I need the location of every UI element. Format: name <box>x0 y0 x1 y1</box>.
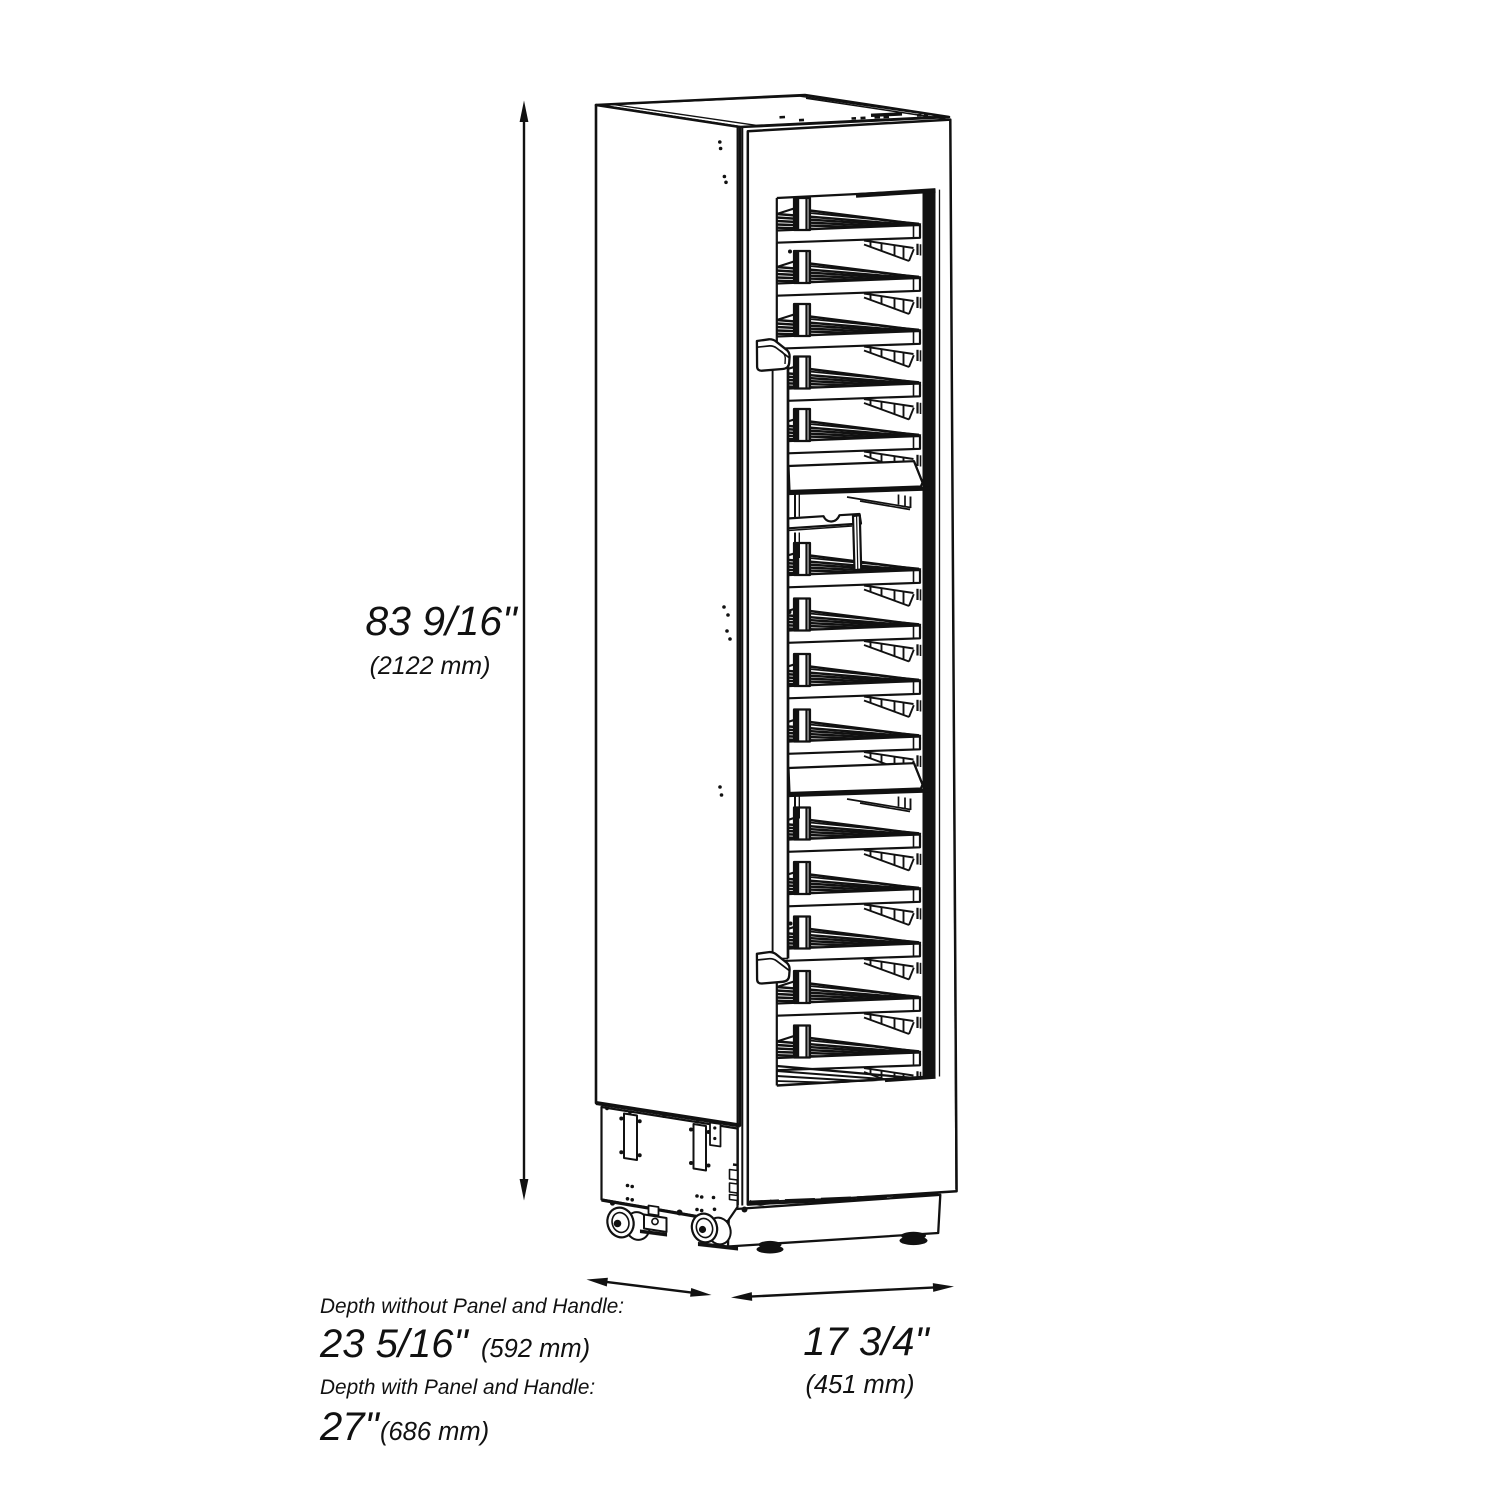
svg-text:83 9/16": 83 9/16" <box>365 598 519 644</box>
svg-text:Depth without Panel and Handle: Depth without Panel and Handle: <box>320 1295 624 1318</box>
svg-text:27": 27" <box>319 1405 380 1449</box>
svg-text:23 5/16": 23 5/16" <box>319 1322 469 1366</box>
svg-text:(592 mm): (592 mm) <box>481 1335 590 1363</box>
svg-text:(686 mm): (686 mm) <box>380 1418 489 1446</box>
svg-text:(451 mm): (451 mm) <box>805 1371 914 1399</box>
svg-text:17 3/4": 17 3/4" <box>803 1320 930 1364</box>
svg-text:(2122 mm): (2122 mm) <box>370 652 491 680</box>
svg-text:Depth with Panel and Handle:: Depth with Panel and Handle: <box>320 1376 595 1399</box>
